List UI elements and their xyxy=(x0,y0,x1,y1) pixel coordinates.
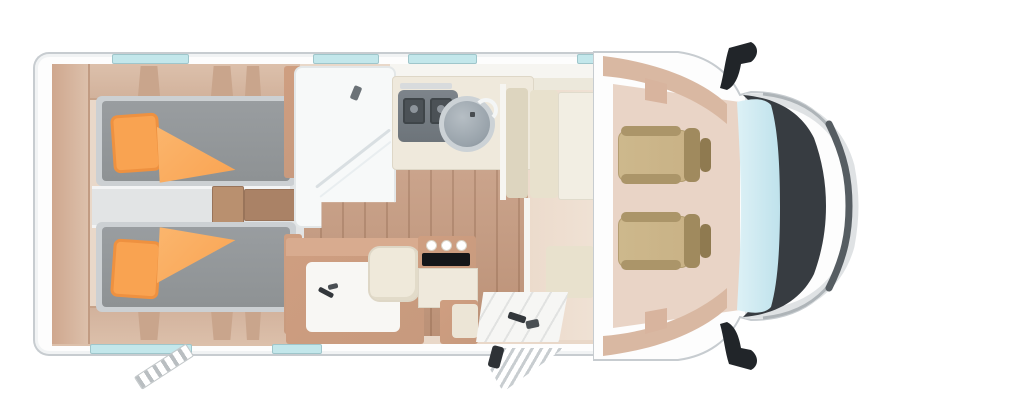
hob-control-strip xyxy=(400,83,452,89)
window-top xyxy=(408,54,477,64)
side-mirror-icon xyxy=(720,42,757,90)
cabinet-divider-icon xyxy=(211,66,233,96)
cab-seat xyxy=(618,212,712,270)
cab-seat xyxy=(618,126,712,184)
tv-screen xyxy=(422,253,470,266)
seat-headrest xyxy=(700,138,711,172)
windshield xyxy=(737,99,780,312)
seat-armrest xyxy=(621,174,681,184)
seat-armrest xyxy=(621,126,681,136)
tall-cabinet xyxy=(506,88,528,198)
cabinet-divider-icon xyxy=(138,310,160,340)
cabinet-divider-icon xyxy=(245,310,261,340)
bed-pillow xyxy=(110,112,162,173)
seat-armrest xyxy=(621,260,681,270)
toilet xyxy=(368,246,420,302)
cabinet-divider-icon xyxy=(245,66,261,96)
window-bottom xyxy=(272,344,322,354)
cabinet-divider-icon xyxy=(211,310,233,340)
bed-pillow xyxy=(110,238,162,299)
door-side-cushion xyxy=(452,304,478,338)
knob-icon xyxy=(441,240,452,251)
dinette-bench xyxy=(530,90,558,198)
bedroom-step xyxy=(212,186,244,224)
cab-and-nose xyxy=(593,38,873,374)
seat-headrest xyxy=(700,224,711,258)
seat-armrest xyxy=(621,212,681,222)
hob-grate-icon xyxy=(403,98,425,124)
kitchen-faucet-base xyxy=(470,112,475,117)
seat-backrest xyxy=(684,128,700,182)
side-mirror-icon xyxy=(720,322,757,370)
knob-icon xyxy=(426,240,437,251)
window-top xyxy=(112,54,189,64)
window-top xyxy=(313,54,379,64)
door-wall xyxy=(524,198,530,294)
motorhome-floorplan xyxy=(0,0,1024,410)
rear-wardrobe xyxy=(52,64,90,344)
cab-floor xyxy=(613,84,740,328)
bedroom-step xyxy=(244,189,296,221)
side-bench-seat xyxy=(546,246,594,298)
kitchen-faucet-icon xyxy=(474,98,498,122)
cabinet-divider-icon xyxy=(138,66,160,96)
seat-backrest xyxy=(684,214,700,268)
knob-icon xyxy=(456,240,467,251)
